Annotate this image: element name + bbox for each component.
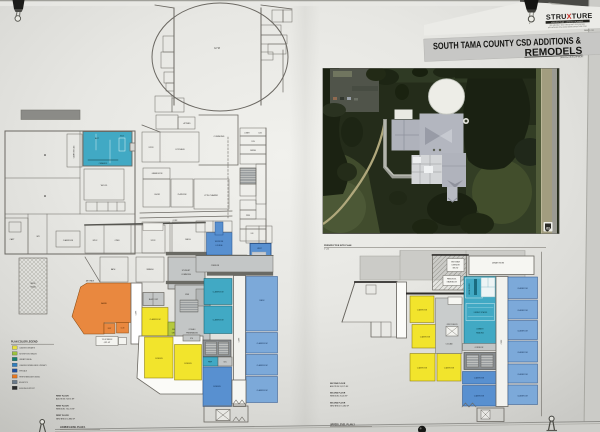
svg-text:SCIENCE: SCIENCE [184,363,192,365]
svg-text:CORRIDOR: CORRIDOR [211,265,220,267]
svg-text:PRESCHOOL: PRESCHOOL [447,279,457,281]
svg-text:OPEN: OPEN [185,294,189,296]
svg-text:WORK RM: WORK RM [215,241,224,243]
svg-text:CORR: CORR [173,220,179,222]
svg-text:COMMONS: COMMONS [181,274,191,276]
svg-text:STOR: STOR [149,147,155,149]
svg-text:CLASSROOM: CLASSROOM [150,318,161,321]
svg-text:CLIN: CLIN [251,141,254,143]
svg-text:STOR: STOR [151,240,156,242]
svg-text:PREP: PREP [208,362,212,364]
svg-text:KITCHEN: KITCHEN [176,149,185,151]
svg-text:BELOW: BELOW [453,267,459,269]
svg-text:63: 63 [546,226,550,230]
svg-text:FIRST FLOOR: FIRST FLOOR [56,396,69,398]
svg-text:LOWER LEVEL PLAN 1: LOWER LEVEL PLAN 1 [60,426,86,429]
svg-text:CHOIR: CHOIR [154,194,160,196]
svg-text:SCIENCE: SCIENCE [213,386,221,388]
svg-text:UPPER LEVEL PLAN 2: UPPER LEVEL PLAN 2 [330,423,355,426]
svg-text:BP 62: BP 62 [93,240,98,242]
svg-text:CLIN: CLIN [258,133,261,135]
svg-text:OPEN TO BELOW: OPEN TO BELOW [447,324,459,326]
svg-text:GREEN ROOM: GREEN ROOM [152,173,163,175]
svg-text:4,321 +RT: 4,321 +RT [104,342,111,344]
svg-text:CLUB: CLUB [121,328,125,330]
svg-text:COLLAB: COLLAB [446,343,454,346]
svg-text:REMODEL 8,545 SF: REMODEL 8,545 SF [330,396,348,398]
svg-text:STUDENT: STUDENT [182,270,191,272]
svg-text:FIRST FLOOR: FIRST FLOOR [56,415,69,417]
svg-text:BAND: BAND [101,302,107,305]
svg-text:GYM: GYM [214,46,220,50]
svg-text:LOUNGE: LOUNGE [215,245,223,247]
svg-text:CLASSROOM: CLASSROOM [257,364,268,367]
svg-text:SCIENCE: SCIENCE [155,358,163,360]
svg-text:CLASSROOM: CLASSROOM [213,319,224,322]
svg-text:NEW BRICK 3,280 SF: NEW BRICK 3,280 SF [330,406,350,408]
svg-text:LITTLE THEATER: LITTLE THEATER [204,194,219,197]
svg-text:ADDITION 73,374 SF: ADDITION 73,374 SF [56,398,75,401]
svg-text:ATTEND: ATTEND [183,122,191,125]
svg-text:COMMONS: COMMONS [214,136,225,138]
svg-text:CORRIDOR: CORRIDOR [475,347,485,349]
svg-text:MECH: MECH [185,239,191,241]
svg-text:BUILDING SUPPORT: BUILDING SUPPORT [19,388,35,390]
svg-text:CLASSROOM: CLASSROOM [257,389,268,392]
svg-text:NURSE: NURSE [250,150,256,152]
svg-text:FIRST FLOOR: FIRST FLOOR [56,406,69,408]
svg-text:READING: READING [476,332,484,335]
svg-text:REMODEL 73,174 SF: REMODEL 73,174 SF [56,409,75,411]
svg-text:STG: STG [190,338,193,340]
svg-text:VEST: VEST [108,328,112,330]
svg-text:WOOD: WOOD [101,185,108,187]
svg-text:PERSPECTIVE SITE PLAN: PERSPECTIVE SITE PLAN [324,244,352,247]
svg-text:VEST: VEST [257,248,261,250]
svg-text:SECOND FLOOR: SECOND FLOOR [330,393,346,395]
svg-text:TOILET RM/LKR: TOILET RM/LKR [102,339,112,341]
svg-text:LOBBY: LOBBY [244,133,250,135]
svg-text:PLAN COLOR LEGEND: PLAN COLOR LEGEND [11,341,38,344]
svg-text:LIBRARY: LIBRARY [476,328,484,331]
svg-text:K.B: K.B [251,233,254,235]
svg-text:NEW BRICK 4,880 SF: NEW BRICK 4,880 SF [56,418,76,420]
svg-text:CLASSROOM: CLASSROOM [213,291,224,294]
svg-text:1″ = 50: 1″ = 50 [324,248,329,250]
svg-text:ADDITION 31,179 SF: ADDITION 31,179 SF [330,385,349,388]
svg-text:KLN: KLN [224,362,227,364]
svg-text:SHEET 1 OF 2: SHEET 1 OF 2 [584,30,594,32]
svg-text:CLASSROOM: CLASSROOM [257,342,268,345]
svg-text:SECOND FLOOR: SECOND FLOOR [330,383,346,385]
svg-text:PACK: PACK [259,299,265,302]
svg-text:SECOND FLOOR: SECOND FLOOR [330,403,346,405]
svg-text:OPEN: OPEN [115,240,121,242]
svg-text:CORRIDOR: CORRIDOR [451,265,460,267]
